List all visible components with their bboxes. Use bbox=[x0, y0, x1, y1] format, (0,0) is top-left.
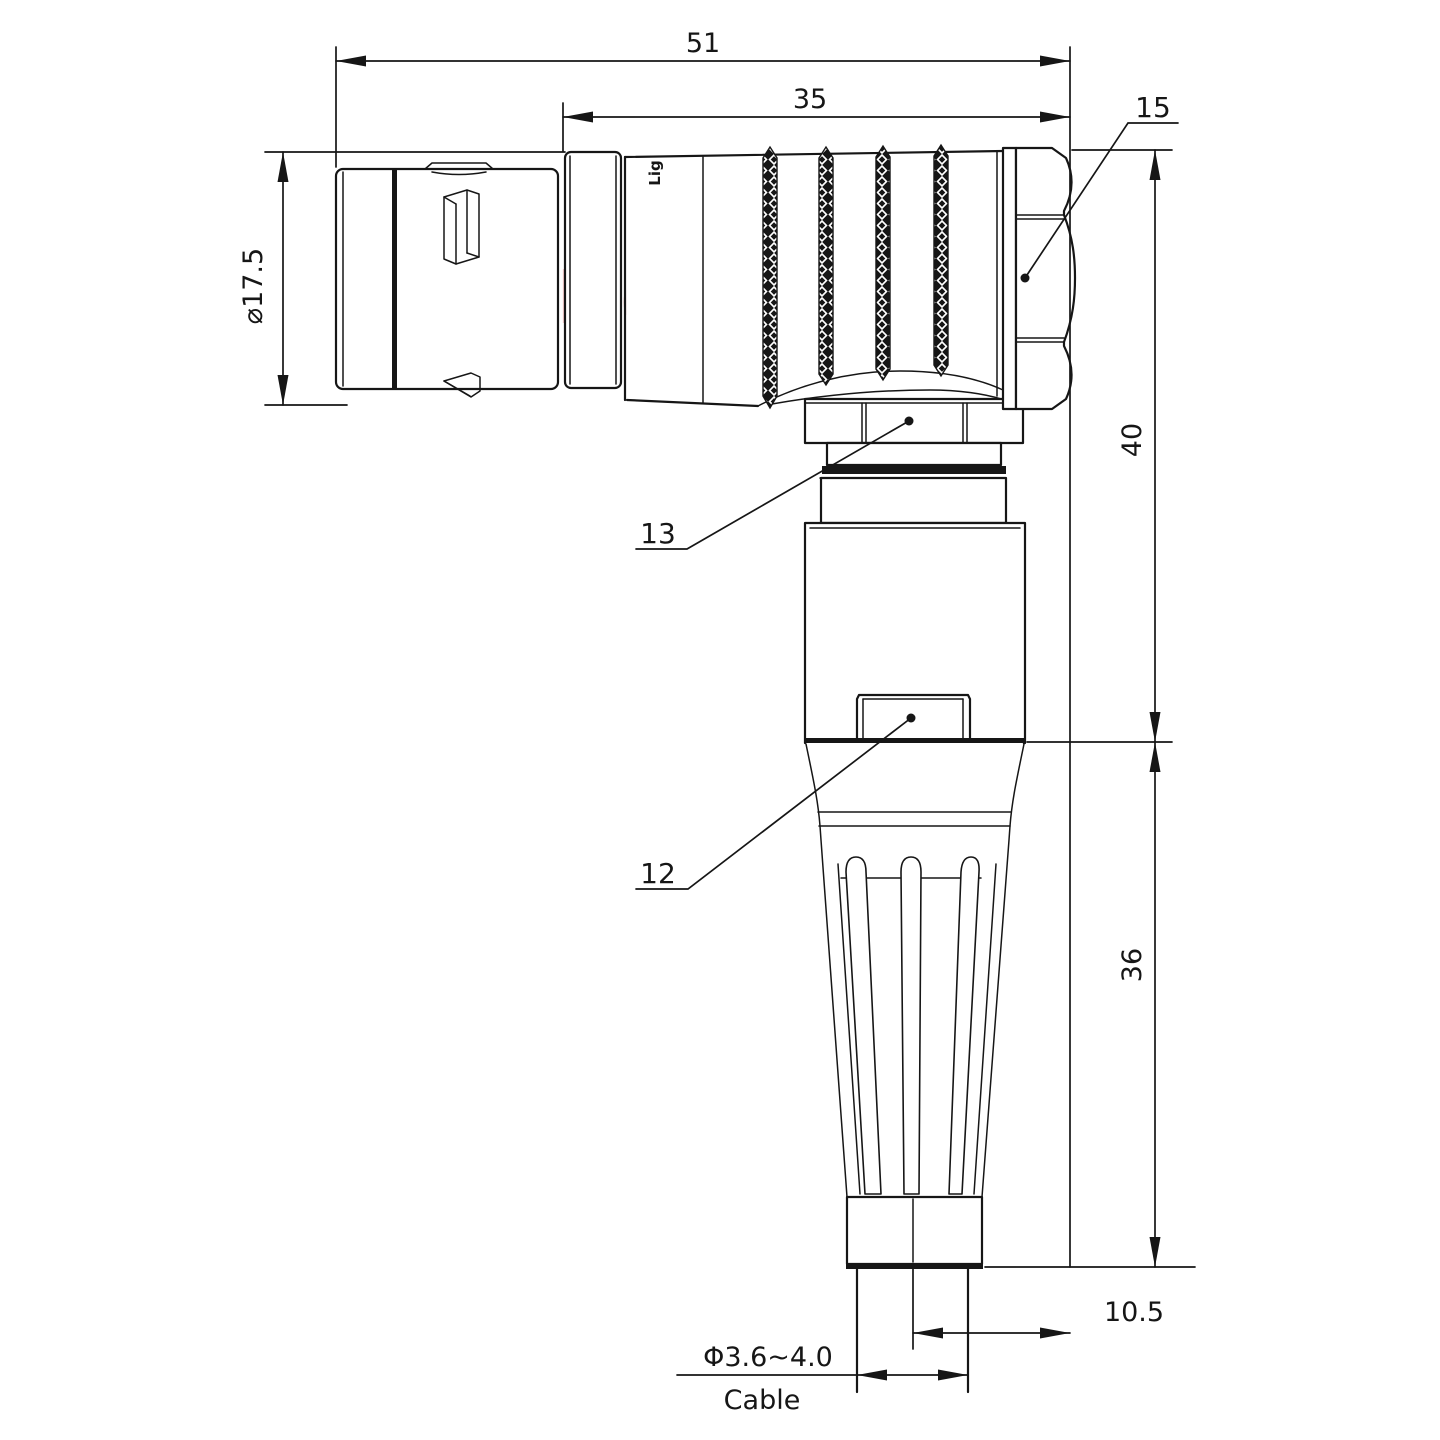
item-13-label: 13 bbox=[640, 517, 676, 550]
cable-label: Cable bbox=[724, 1385, 801, 1416]
dim-overall-length: 51 bbox=[336, 28, 1070, 167]
nut-flange bbox=[1003, 148, 1016, 409]
dim-lower-height: 36 bbox=[985, 742, 1195, 1267]
dim-17-5-label: ⌀17.5 bbox=[238, 248, 269, 324]
dim-10-5-label: 10.5 bbox=[1104, 1297, 1164, 1328]
dim-40-label: 40 bbox=[1117, 423, 1148, 457]
dim-cable-diameter: Φ3.6~4.0 Cable bbox=[677, 1342, 968, 1416]
cable-diameter-label: Φ3.6~4.0 bbox=[703, 1342, 833, 1373]
connector-technical-drawing: Lightany bbox=[0, 0, 1440, 1440]
dim-51-label: 51 bbox=[686, 28, 720, 59]
dim-upper-height: 40 bbox=[1072, 150, 1172, 742]
horizontal-assembly: Lig bbox=[336, 145, 1075, 409]
dim-35-label: 35 bbox=[793, 84, 827, 115]
dim-36-label: 36 bbox=[1117, 948, 1148, 982]
grip-ring bbox=[565, 152, 621, 388]
coupling-nut bbox=[805, 399, 1023, 443]
release-sleeve bbox=[336, 169, 558, 389]
ferrule-bottom-edge bbox=[846, 1263, 983, 1269]
gland-slot bbox=[901, 857, 921, 1194]
knurl-strip bbox=[876, 146, 890, 380]
housing-bottom-edge bbox=[805, 738, 1025, 743]
item-15-label: 15 bbox=[1135, 91, 1171, 124]
neck-cylinder bbox=[821, 478, 1006, 523]
vertical-stack bbox=[805, 399, 1025, 1392]
ferrule bbox=[847, 1197, 982, 1264]
part-marking-text: Lig bbox=[646, 160, 664, 185]
item-12-label: 12 bbox=[640, 857, 676, 890]
sleeve-band bbox=[392, 170, 397, 388]
knurl-strip bbox=[763, 147, 777, 408]
drawing-canvas: Lightany bbox=[0, 0, 1440, 1440]
knurl-strip bbox=[819, 147, 833, 385]
knurl-strip bbox=[934, 145, 948, 376]
o-ring bbox=[822, 466, 1006, 474]
dim-cable-offset: 10.5 bbox=[913, 1269, 1164, 1349]
dim-rear-length: 35 bbox=[563, 84, 1070, 151]
